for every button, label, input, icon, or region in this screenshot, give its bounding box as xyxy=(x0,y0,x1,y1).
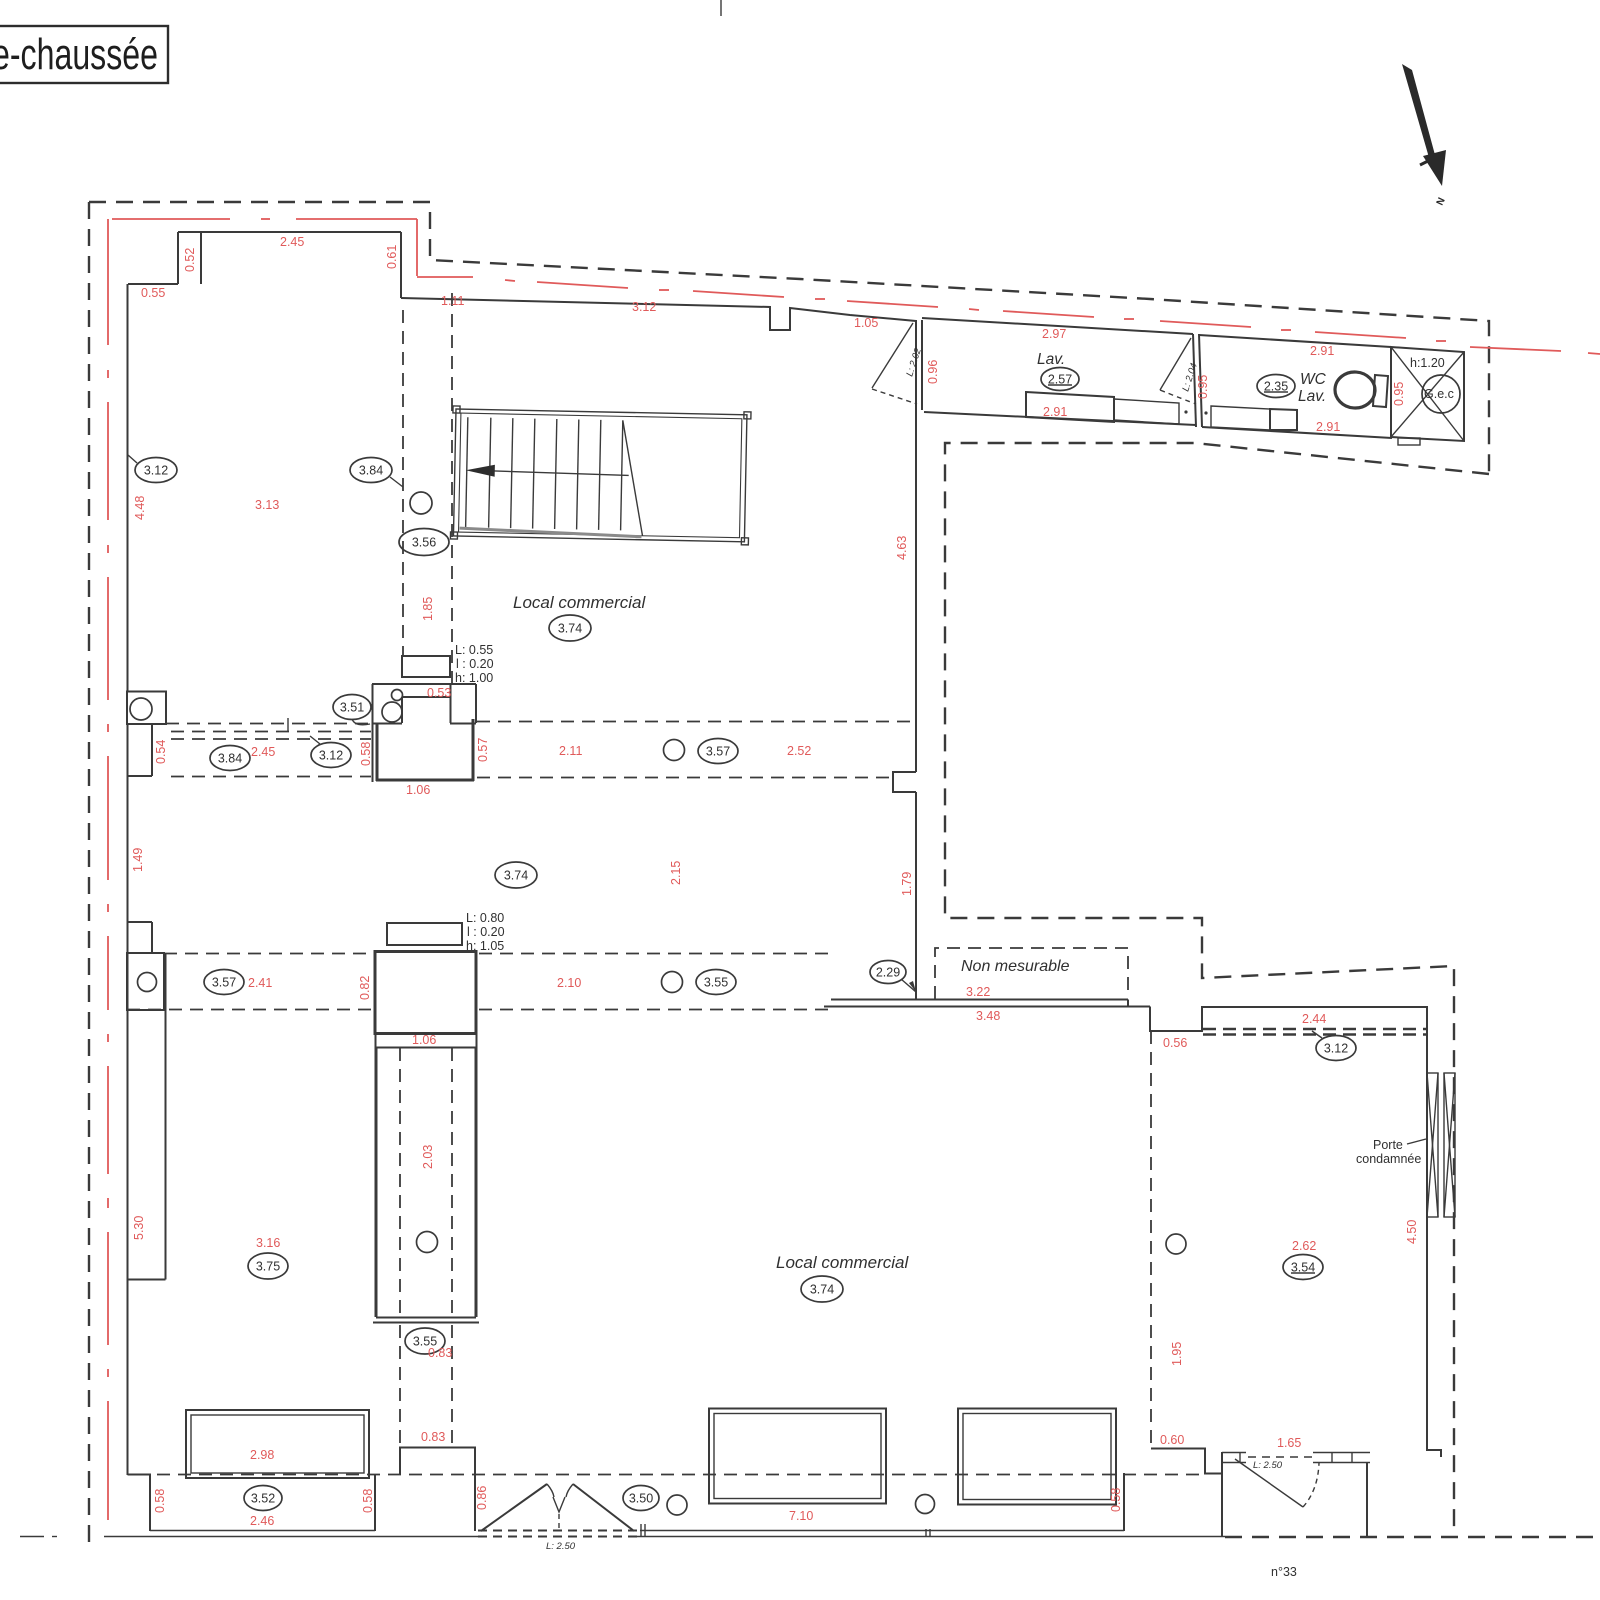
svg-text:3.74: 3.74 xyxy=(504,869,528,883)
svg-text:4.50: 4.50 xyxy=(1405,1220,1419,1244)
svg-text:3.16: 3.16 xyxy=(256,1236,280,1250)
svg-text:1.95: 1.95 xyxy=(1170,1342,1184,1366)
svg-text:Porte: Porte xyxy=(1373,1138,1403,1152)
svg-text:n°33: n°33 xyxy=(1271,1565,1297,1579)
svg-text:0.56: 0.56 xyxy=(1163,1036,1187,1050)
svg-text:3.84: 3.84 xyxy=(218,752,242,766)
svg-text:3.22: 3.22 xyxy=(966,985,990,999)
svg-text:2.91: 2.91 xyxy=(1043,405,1067,419)
svg-text:2.41: 2.41 xyxy=(248,976,272,990)
svg-text:0.58: 0.58 xyxy=(1109,1488,1123,1512)
svg-text:2.91: 2.91 xyxy=(1316,420,1340,434)
svg-text:3.12: 3.12 xyxy=(144,464,168,478)
svg-text:0.58: 0.58 xyxy=(153,1489,167,1513)
svg-text:0.83: 0.83 xyxy=(428,1346,452,1360)
svg-text:1.85: 1.85 xyxy=(421,597,435,621)
svg-text:3.12: 3.12 xyxy=(319,749,343,763)
svg-text:1.11: 1.11 xyxy=(441,294,464,308)
svg-text:2.98: 2.98 xyxy=(250,1448,274,1462)
svg-text:3.56: 3.56 xyxy=(412,536,436,550)
svg-text:2.10: 2.10 xyxy=(557,976,581,990)
svg-text:1.05: 1.05 xyxy=(854,316,878,330)
svg-text:0.57: 0.57 xyxy=(476,738,490,762)
svg-text:1.49: 1.49 xyxy=(131,848,145,872)
svg-text:3.12: 3.12 xyxy=(1324,1042,1348,1056)
svg-text:Non mesurable: Non mesurable xyxy=(961,958,1070,975)
svg-text:3.57: 3.57 xyxy=(706,745,730,759)
svg-text:L: 0.80: L: 0.80 xyxy=(466,911,504,925)
svg-text:5.30: 5.30 xyxy=(132,1216,146,1240)
svg-text:0.60: 0.60 xyxy=(1160,1433,1184,1447)
svg-text:2.97: 2.97 xyxy=(1042,327,1066,341)
svg-text:h:1.20: h:1.20 xyxy=(1410,356,1445,370)
svg-text:2.11: 2.11 xyxy=(559,744,582,758)
svg-text:2.15: 2.15 xyxy=(669,861,683,885)
svg-text:2.62: 2.62 xyxy=(1292,1239,1316,1253)
svg-text:3.75: 3.75 xyxy=(256,1260,280,1274)
svg-text:Lav.: Lav. xyxy=(1037,351,1065,368)
svg-text:0.55: 0.55 xyxy=(141,286,165,300)
svg-text:L: 0.55: L: 0.55 xyxy=(455,643,493,657)
svg-text:e-chaussée: e-chaussée xyxy=(0,30,158,79)
svg-text:4.63: 4.63 xyxy=(895,536,909,560)
svg-text:3.50: 3.50 xyxy=(629,1492,653,1506)
svg-text:2.03: 2.03 xyxy=(421,1145,435,1169)
svg-text:0.96: 0.96 xyxy=(926,360,940,384)
svg-text:L: 2.50: L: 2.50 xyxy=(546,1541,576,1552)
svg-text:0.58: 0.58 xyxy=(361,1489,375,1513)
svg-text:2.45: 2.45 xyxy=(280,235,304,249)
svg-text:Local commercial: Local commercial xyxy=(776,1253,909,1272)
svg-text:2.44: 2.44 xyxy=(1302,1012,1326,1026)
svg-text:2.45: 2.45 xyxy=(251,745,275,759)
svg-text:Local commercial: Local commercial xyxy=(513,593,646,612)
svg-text:1.06: 1.06 xyxy=(412,1033,436,1047)
svg-text:0.61: 0.61 xyxy=(385,245,399,269)
svg-text:L: 2.50: L: 2.50 xyxy=(1253,1460,1283,1471)
svg-text:3.74: 3.74 xyxy=(558,622,582,636)
svg-text:0.82: 0.82 xyxy=(358,976,372,1000)
svg-text:3.13: 3.13 xyxy=(255,498,279,512)
svg-text:G.e.c: G.e.c xyxy=(1424,387,1454,401)
svg-text:1.65: 1.65 xyxy=(1277,1436,1301,1450)
svg-text:2.46: 2.46 xyxy=(250,1514,274,1528)
svg-text:h: 1.00: h: 1.00 xyxy=(455,671,493,685)
svg-text:0.83: 0.83 xyxy=(421,1430,445,1444)
svg-text:1.06: 1.06 xyxy=(406,783,430,797)
svg-text:4.48: 4.48 xyxy=(133,496,147,520)
svg-text:3.74: 3.74 xyxy=(810,1283,834,1297)
svg-text:2.91: 2.91 xyxy=(1310,344,1334,358)
svg-text:0.52: 0.52 xyxy=(183,248,197,272)
svg-text:2.29: 2.29 xyxy=(876,966,900,980)
svg-text:condamnée: condamnée xyxy=(1356,1152,1421,1166)
svg-text:2.52: 2.52 xyxy=(787,744,811,758)
svg-text:0.53: 0.53 xyxy=(427,686,451,700)
svg-text:3.12: 3.12 xyxy=(632,300,656,314)
svg-text:3.84: 3.84 xyxy=(359,464,383,478)
svg-text:7.10: 7.10 xyxy=(789,1509,813,1523)
svg-text:l : 0.20: l : 0.20 xyxy=(456,657,494,671)
svg-text:0.95: 0.95 xyxy=(1196,375,1210,399)
svg-text:0.58: 0.58 xyxy=(359,742,373,766)
svg-text:1.79: 1.79 xyxy=(900,872,914,896)
svg-text:3.48: 3.48 xyxy=(976,1009,1000,1023)
svg-text:3.52: 3.52 xyxy=(251,1492,275,1506)
svg-text:3.55: 3.55 xyxy=(704,976,728,990)
svg-text:l : 0.20: l : 0.20 xyxy=(467,925,505,939)
svg-text:3.51: 3.51 xyxy=(340,701,364,715)
svg-text:WC: WC xyxy=(1300,371,1327,388)
svg-text:0.54: 0.54 xyxy=(154,740,168,764)
svg-text:Lav.: Lav. xyxy=(1298,388,1326,405)
svg-text:3.57: 3.57 xyxy=(212,976,236,990)
svg-text:0.86: 0.86 xyxy=(475,1486,489,1510)
svg-text:0.95: 0.95 xyxy=(1392,382,1406,406)
